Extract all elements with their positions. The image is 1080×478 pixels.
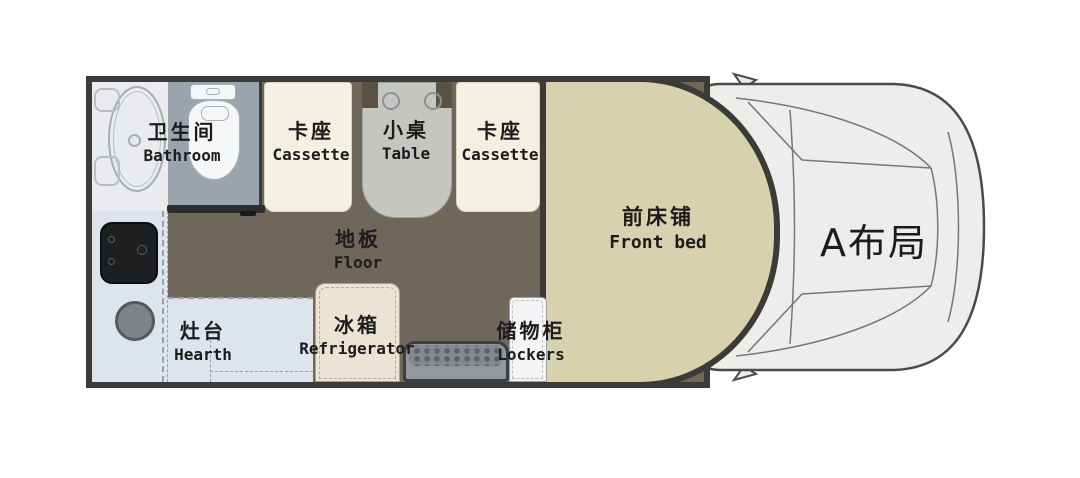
label-bathroom: 卫生间 Bathroom: [143, 121, 220, 165]
label-front-bed: 前床铺 Front bed: [609, 206, 707, 253]
shower-drain-icon: [128, 134, 141, 147]
label-front-bed-zh: 前床铺: [609, 206, 707, 229]
stove-knob-icon: [108, 236, 115, 243]
label-cassette-right-en: Cassette: [461, 145, 538, 164]
label-refrigerator: 冰箱 Refrigerator: [299, 314, 415, 358]
bathroom-shelf-icon: [94, 156, 120, 186]
label-table: 小桌 Table: [382, 119, 430, 163]
label-cassette-left: 卡座 Cassette: [272, 120, 349, 164]
label-hearth-zh: 灶台: [174, 320, 232, 342]
label-front-bed-en: Front bed: [609, 232, 707, 253]
bathroom-door-handle: [240, 211, 256, 216]
table-mount-left: [362, 82, 378, 108]
label-refrigerator-en: Refrigerator: [299, 339, 415, 358]
sink-icon: [115, 301, 155, 341]
stove-icon: [100, 222, 158, 284]
counter-divider-line: [162, 211, 164, 382]
label-cassette-right: 卡座 Cassette: [461, 120, 538, 164]
label-bathroom-zh: 卫生间: [143, 121, 220, 143]
label-table-en: Table: [382, 144, 430, 163]
toilet-flush-button-icon: [206, 88, 220, 95]
label-hearth: 灶台 Hearth: [174, 320, 232, 364]
stove-knob-icon: [108, 258, 115, 265]
label-lockers-en: Lockers: [497, 345, 566, 364]
entry-step-tread: [409, 345, 503, 366]
label-table-zh: 小桌: [382, 119, 430, 141]
table-cupholder-icon: [424, 92, 442, 110]
label-cassette-right-zh: 卡座: [461, 120, 538, 142]
label-floor-zh: 地板: [334, 228, 382, 250]
label-cassette-left-en: Cassette: [272, 145, 349, 164]
label-hearth-en: Hearth: [174, 345, 232, 364]
floorplan-canvas: 卫生间 Bathroom 卡座 Cassette 小桌 Table 卡座 Cas…: [0, 0, 1080, 478]
stove-knob-icon: [137, 245, 147, 255]
label-cassette-left-zh: 卡座: [272, 120, 349, 142]
label-bathroom-en: Bathroom: [143, 146, 220, 165]
label-refrigerator-zh: 冰箱: [299, 314, 415, 336]
toilet-seat-icon: [201, 106, 229, 121]
bathroom-shelf-icon: [94, 88, 120, 112]
counter-divider-line: [168, 297, 313, 299]
counter-divider-line: [210, 371, 313, 372]
label-lockers: 储物柜 Lockers: [497, 320, 566, 364]
label-floor: 地板 Floor: [334, 228, 382, 272]
layout-badge: A布局: [820, 212, 928, 267]
label-floor-en: Floor: [334, 253, 382, 272]
table-cupholder-icon: [382, 92, 400, 110]
label-lockers-zh: 储物柜: [497, 320, 566, 342]
